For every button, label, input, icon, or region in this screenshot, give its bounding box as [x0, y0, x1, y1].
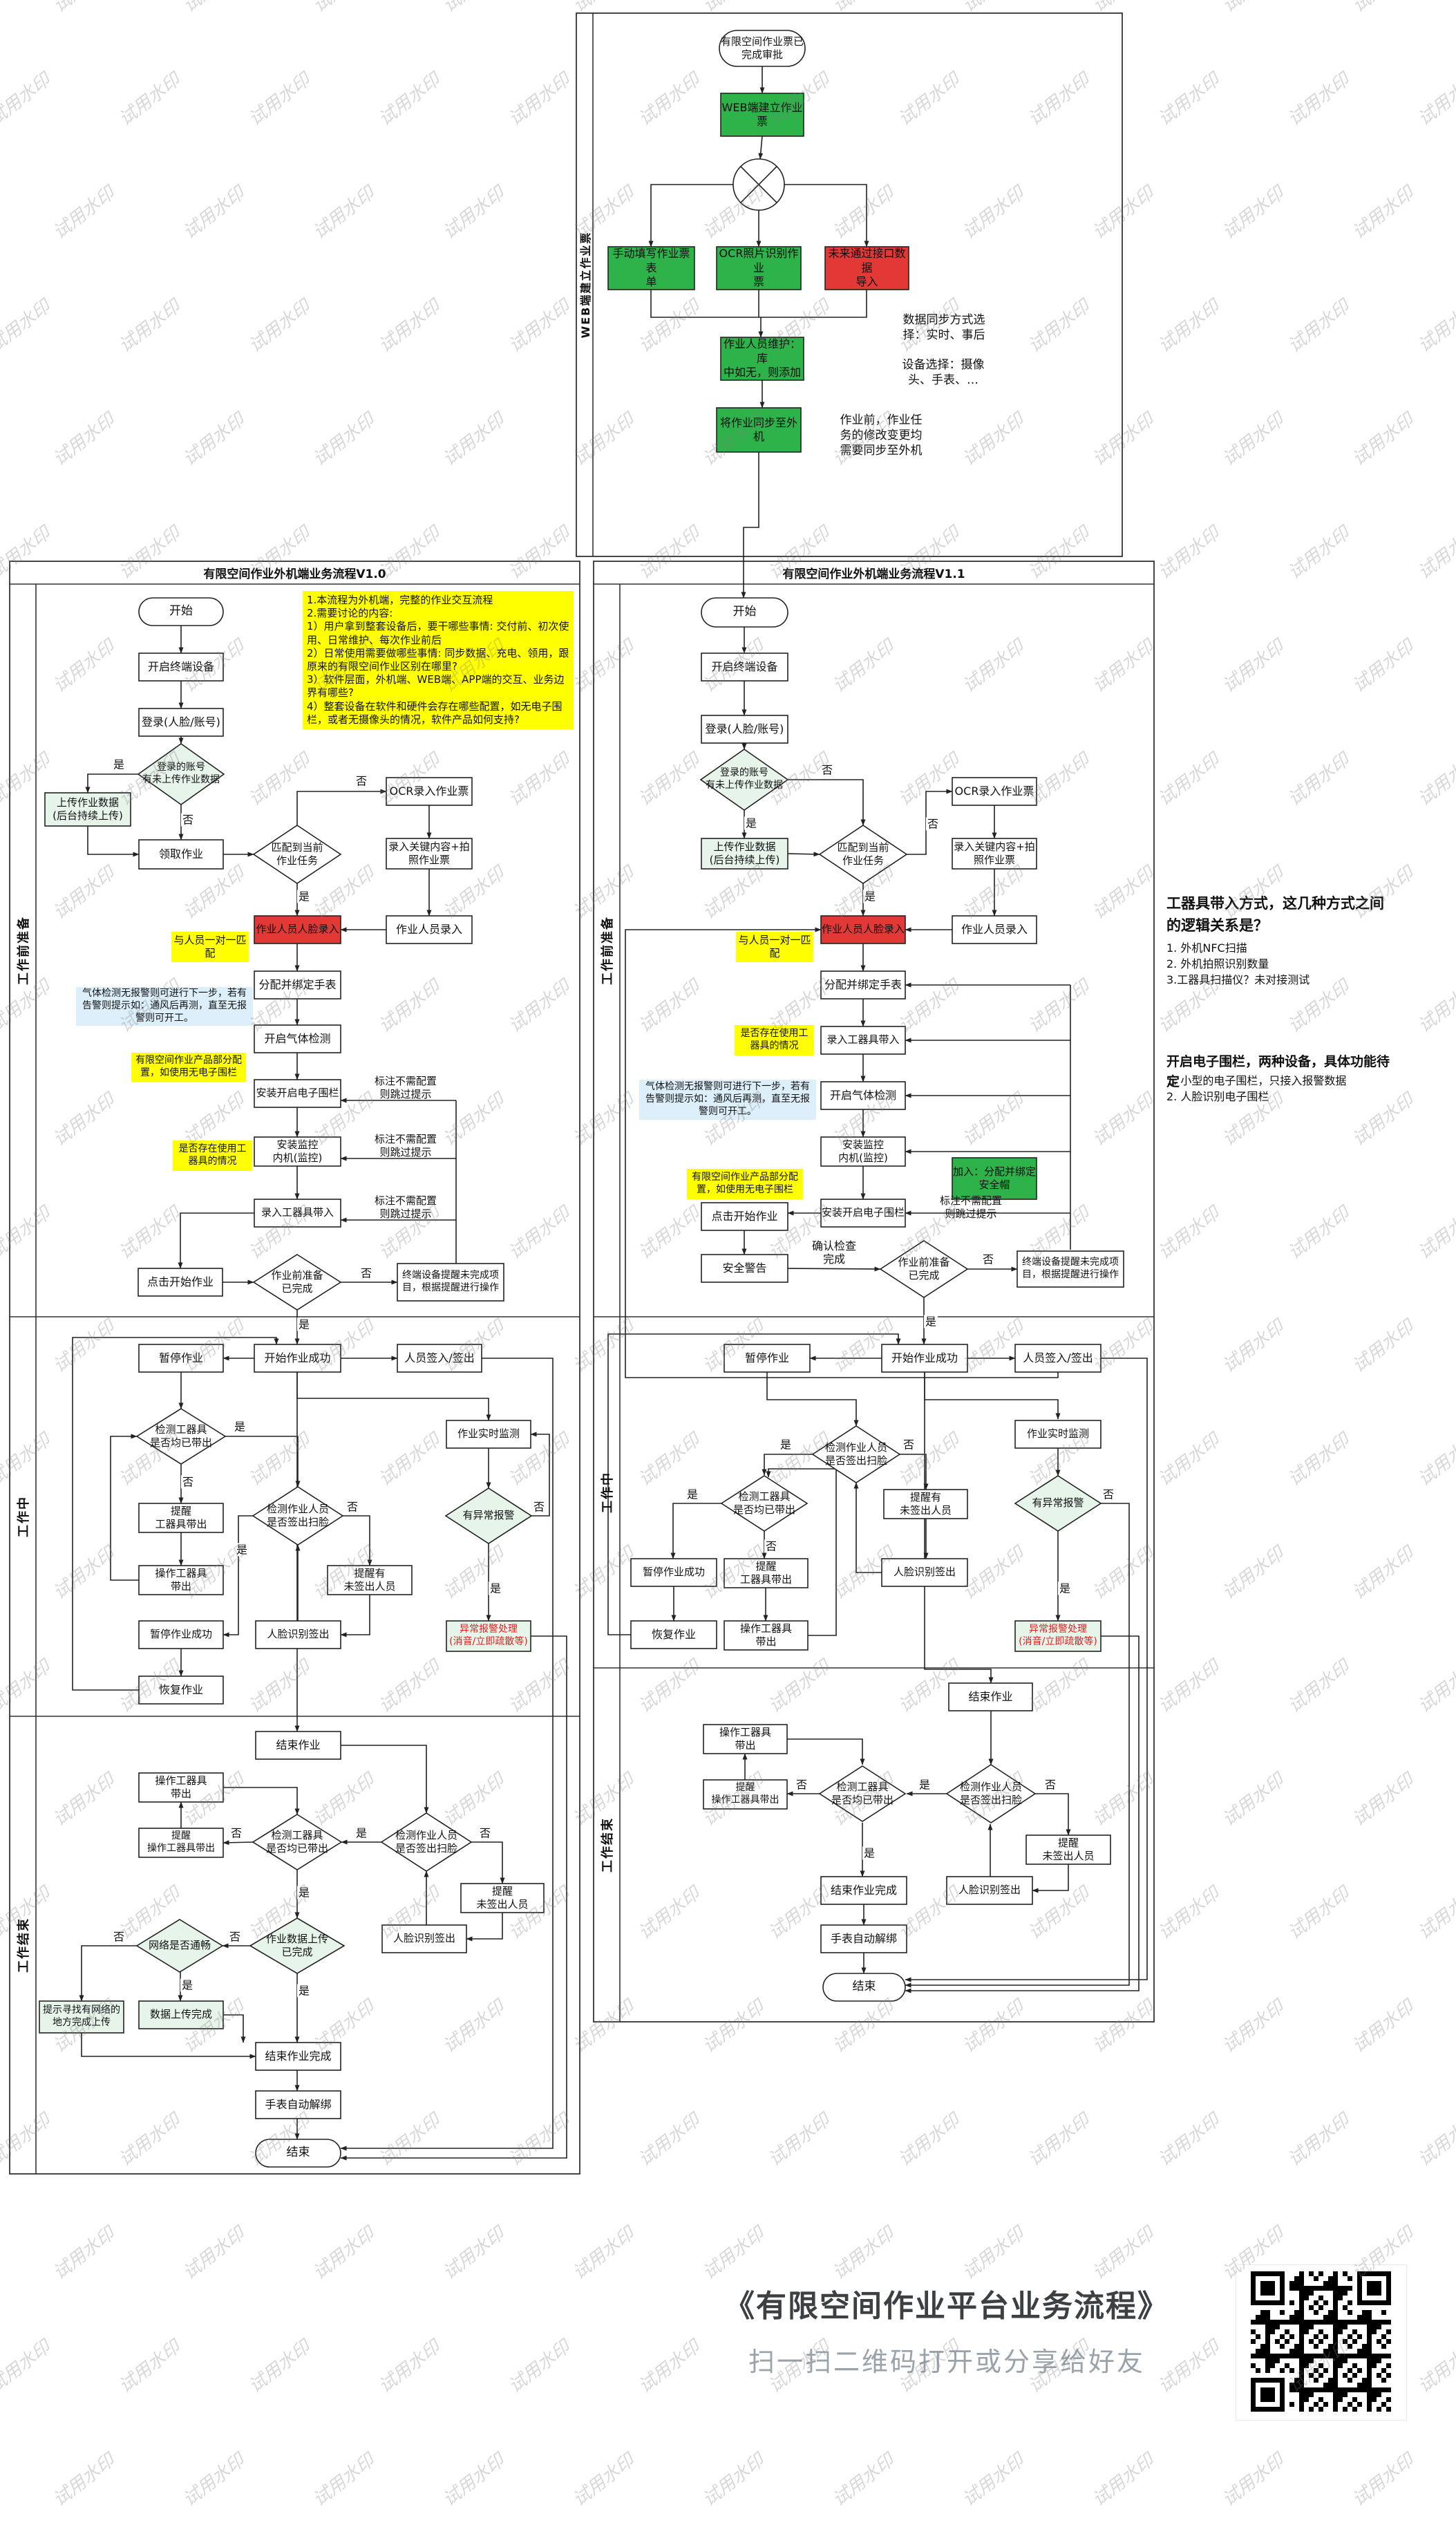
row-label-v10-0: 工作前准备: [14, 916, 32, 985]
edge-label-81: 是: [863, 890, 877, 903]
edge-label-108: 是: [686, 1487, 699, 1501]
flow-edge-41: [225, 1436, 298, 1487]
flow-edge-1: [760, 136, 762, 159]
node-b-n-tool: 是否存在使用工 器具的情况: [735, 1025, 814, 1055]
edge-label-64: 否: [228, 1930, 242, 1943]
node-a-key: 录入关键内容+拍 照作业票: [386, 838, 472, 869]
node-a-d-net: 网络是否通畅: [137, 1920, 223, 1972]
banner-subtitle: 扫一扫二维码打开或分享给好友: [677, 2340, 1216, 2378]
node-a-hint: 提示寻找有网络的 地方完成上传: [39, 2001, 124, 2033]
side-note-sn2: 1. 外机NFC扫描 2. 外机拍照识别数量 3.工器具扫描仪？未对接测试: [1166, 940, 1374, 988]
edge-label-121: 是: [918, 1778, 932, 1791]
node-b-n-cfg: 有限空间作业产品部分配 置，如使用无电子围栏: [687, 1169, 803, 1199]
node-w-note3: 作业前，作业任 务的修改变更均 需要同步至外机: [833, 409, 929, 463]
node-a-facesign: 人脸识别签出: [256, 1621, 341, 1649]
edge-label-76: 是: [744, 816, 758, 829]
row-label-v11-0: 工作前准备: [598, 916, 616, 985]
flow-edge-27: [180, 1213, 254, 1268]
node-b-d-ready: 作业前准备 已完成: [880, 1241, 967, 1297]
node-b-safety: 安全警告: [701, 1255, 788, 1282]
node-a-pauseok: 暂停作业成功: [139, 1621, 223, 1649]
node-a-endok: 结束作业完成: [256, 2043, 341, 2070]
section-v11-title: 有限空间作业外机端业务流程V1.1: [594, 561, 1154, 584]
flow-edge-42: [343, 1516, 370, 1566]
node-b-rtmon: 作业实时监测: [1015, 1420, 1101, 1448]
node-a-n-gas: 气体检测无报警则可进行下一步，若有 告警则提示如：通风后再测，直至无报 警则可开…: [76, 987, 253, 1026]
flow-edge-40: [111, 1436, 139, 1580]
edge-label-57: 否: [478, 1826, 492, 1839]
edge-label-125: 否: [795, 1778, 809, 1791]
node-a-d-tools2: 检测工器具 是否均已带出: [253, 1814, 341, 1870]
node-b-pauseok: 暂停作业成功: [631, 1559, 717, 1586]
flow-edge-43: [341, 1595, 370, 1635]
node-a-remind: 终端设备提醒未完成项 目，根据提醒进行操作: [397, 1264, 504, 1301]
node-w-create: WEB端建立作业票: [721, 93, 804, 136]
flow-edge-108: [673, 1503, 721, 1559]
node-b-remsign: 提醒有 未签出人员: [884, 1490, 967, 1519]
flow-edge-127: [787, 1739, 862, 1765]
row-label-v11-2: 工作结束: [598, 1817, 616, 1873]
edge-label-66: 是: [180, 1978, 194, 1991]
side-note-sn1: 工器具带入方式，这几种方式之间 的逻辑关系是？: [1166, 893, 1394, 937]
flow-edge-53: [341, 1358, 553, 2148]
lane-label-web: WEB端建立作业票: [576, 232, 593, 339]
flow-edge-75: [788, 780, 863, 825]
node-b-ocr: OCR录入作业票: [952, 778, 1037, 805]
node-b-open: 开启终端设备: [701, 653, 788, 681]
node-a-remop: 提醒 操作工器具带出: [139, 1828, 223, 1857]
row-label-v10-1: 工作中: [14, 1496, 32, 1537]
node-b-remtools: 提醒 工器具带出: [724, 1559, 808, 1588]
node-b-helmet: 加入：分配并绑定 安全帽: [952, 1158, 1037, 1199]
node-b-optools2: 操作工器具 带出: [703, 1725, 787, 1754]
node-w-api: 未来通过接口数据 导入: [825, 247, 909, 290]
node-b-startok: 开始作业成功: [882, 1344, 967, 1372]
node-b-watch: 分配并绑定手表: [821, 971, 905, 999]
node-b-d-person: 检测作业人员 是否签出扫脸: [813, 1426, 900, 1483]
side-note-sn4: 1. 小型的电子围栏，只接入报警数据 2. 人脸识别电子围栏: [1166, 1073, 1381, 1105]
flow-edge-57: [471, 1842, 502, 1884]
node-a-upload: 上传作业数据 (后台持续上传): [45, 793, 131, 826]
flow-edge-119: [925, 1372, 991, 1683]
node-a-tools: 录入工器具带入: [254, 1199, 341, 1227]
node-a-d-match: 匹配到当前 作业任务: [254, 825, 341, 883]
node-b-n-gas: 气体检测无报警则可进行下一步，若有 告警则提示如：通风后再测，直至无报 警则可开…: [639, 1080, 816, 1120]
banner-title: 《有限空间作业平台业务流程》: [677, 2281, 1216, 2325]
node-b-tools: 录入工器具带入: [821, 1026, 905, 1054]
node-a-startok: 开始作业成功: [254, 1344, 341, 1372]
node-w-maintain: 作业人员维护：库 中如无，则添加: [721, 337, 804, 380]
node-b-person: 作业人员录入: [952, 916, 1037, 944]
node-b-d-match: 匹配到当前 作业任务: [820, 825, 907, 883]
flow-edge-90: [788, 1268, 880, 1269]
flow-edge-55: [341, 1745, 426, 1813]
node-w-sync: 将作业同步至外机: [717, 408, 801, 452]
node-a-updone: 数据上传完成: [139, 2001, 223, 2029]
node-b-end: 结束: [823, 1973, 905, 2001]
node-a-resume: 恢复作业: [139, 1676, 223, 1704]
node-b-monitor: 安装监控 内机(监控): [821, 1137, 905, 1166]
node-a-ocr: OCR录入作业票: [386, 778, 472, 805]
edge-label-41: 是: [233, 1420, 247, 1433]
flow-edge-60: [223, 1842, 253, 1843]
node-a-skip1: 标注不需配置 则跳过提示: [361, 1074, 451, 1102]
flow-edge-102: [764, 1454, 813, 1475]
node-a-n-match: 与人员一对一匹 配: [171, 932, 249, 962]
edge-label-115: 是: [1058, 1582, 1072, 1595]
flow-edge-103: [900, 1454, 926, 1490]
flow-edge-17: [297, 791, 386, 825]
node-b-start: 开始: [701, 598, 788, 627]
edge-label-14: 否: [181, 813, 195, 826]
node-a-fence: 安装开启电子围栏: [254, 1080, 341, 1107]
section-v10-title: 有限空间作业外机端业务流程V1.0: [10, 561, 580, 584]
edge-label-63: 是: [297, 1886, 311, 1899]
node-a-n-tool: 是否存在使用工 器具的情况: [173, 1141, 252, 1171]
node-b-face: 作业人员人脸录入: [821, 916, 905, 944]
node-a-d-unup: 登录的账号 有未上传作业数据: [138, 744, 224, 805]
qr-code: [1236, 2264, 1407, 2421]
flow-edge-62: [223, 1787, 297, 1814]
edge-label-38: 否: [181, 1475, 195, 1488]
node-a-facesign2: 人脸识别签出: [382, 1925, 466, 1953]
edge-label-52: 否: [532, 1500, 546, 1513]
node-a-pause: 暂停作业: [139, 1344, 223, 1372]
node-a-remsign2: 提醒 未签出人员: [461, 1884, 544, 1913]
node-a-watch: 分配并绑定手表: [254, 971, 341, 999]
edge-label-122: 否: [1043, 1778, 1057, 1791]
edge-label-67: 是: [297, 1984, 311, 1997]
edge-label-128: 是: [862, 1846, 876, 1859]
edge-label-20: 是: [297, 890, 311, 903]
flow-edge-69: [223, 2015, 243, 2043]
node-a-end: 结束: [256, 2139, 341, 2167]
edge-label-51: 是: [489, 1582, 502, 1595]
node-b-key: 录入关键内容+拍 照作业票: [952, 838, 1037, 869]
row-label-v10-2: 工作结束: [14, 1917, 32, 1973]
node-a-alarm: 异常报警处理 (消音/立即疏散等): [446, 1621, 531, 1651]
node-b-n-match: 与人员一对一匹 配: [736, 932, 813, 962]
node-b-facesign: 人脸识别签出: [882, 1559, 967, 1586]
node-w-note1: 数据同步方式选 择：实时、事后: [889, 310, 999, 347]
node-w-start: 有限空间作业票已 完成审批: [719, 30, 805, 66]
flow-edge-105: [856, 1483, 882, 1573]
page: { "watermark": {"text": "试用水印"}, "banner…: [0, 0, 1456, 2534]
node-b-skip1: 标注不需配置 则跳过提示: [926, 1194, 1016, 1221]
node-a-d-person: 检测作业人员 是否签出扫脸: [253, 1487, 343, 1545]
flow-edge-2: [651, 185, 734, 247]
node-a-sign: 人员签入/签出: [397, 1344, 482, 1372]
edge-label-92: 是: [924, 1315, 938, 1328]
node-b-d-alarm: 有异常报警: [1015, 1476, 1101, 1531]
edge-label-30: 是: [297, 1317, 311, 1331]
node-b-d-unup: 登录的账号 有未上传作业数据: [701, 749, 788, 810]
flow-edge-77: [788, 854, 820, 854]
node-b-remsign2: 提醒 未签出人员: [1026, 1835, 1110, 1864]
node-b-sign: 人员签入/签出: [1015, 1344, 1101, 1372]
flow-edge-68: [82, 2033, 256, 2056]
edge-label-29: 否: [359, 1266, 373, 1279]
node-w-manual: 手动填写作业票表 单: [608, 247, 694, 290]
flow-edge-45: [223, 1516, 253, 1635]
edge-label-91: 否: [981, 1252, 995, 1266]
node-a-optools2: 操作工器具 带出: [139, 1773, 223, 1802]
node-b-gas: 开启气体检测: [821, 1082, 905, 1109]
node-a-remsign: 提醒有 未签出人员: [328, 1566, 412, 1595]
edge-label-90: 确认检查 完成: [811, 1239, 858, 1266]
flow-edge-113: [925, 1372, 1058, 1419]
node-b-pause: 暂停作业: [724, 1344, 810, 1372]
edge-label-56: 是: [354, 1826, 368, 1839]
node-b-remop: 提醒 操作工器具带出: [703, 1780, 787, 1809]
node-a-d-person2: 检测作业人员 是否签出扫脸: [381, 1813, 471, 1871]
flow-edge-13: [88, 774, 138, 793]
edge-label-106: 否: [764, 1539, 778, 1552]
edge-label-75: 否: [820, 763, 834, 776]
node-a-bignote: 1.本流程为外机端，完整的作业交互流程 2.需要讨论的内容: 1）用户拿到整套设…: [303, 591, 574, 729]
node-w-ocr: OCR照片识别作业 票: [717, 247, 801, 290]
node-a-person: 作业人员录入: [386, 916, 472, 944]
node-b-click: 点击开始作业: [701, 1203, 788, 1230]
node-b-remind: 终端设备提醒未完成项 目，根据提醒进行操作: [1017, 1251, 1124, 1287]
flow-edge-58: [466, 1913, 502, 1939]
node-a-d-tools: 检测工器具 是否均已带出: [137, 1409, 225, 1464]
edge-label-65: 否: [112, 1930, 126, 1943]
flow-edge-65: [82, 1946, 137, 2001]
node-b-upload: 上传作业数据 (后台持续上传): [701, 838, 788, 869]
flow-edge-101: [767, 1372, 856, 1426]
flow-edge-122: [1035, 1794, 1068, 1835]
flow-edge-15: [88, 826, 139, 854]
node-b-alarm: 异常报警处理 (消音/立即疏散等): [1015, 1621, 1101, 1651]
node-a-remtools: 提醒 工器具带出: [139, 1503, 223, 1532]
edge-label-102: 是: [779, 1438, 793, 1451]
node-a-d-upload: 作业数据上传 已完成: [250, 1918, 344, 1973]
edge-label-103: 否: [902, 1438, 916, 1451]
node-a-n-cfg: 有限空间作业产品部分配 置，如使用无电子围栏: [131, 1053, 246, 1082]
flow-edge-49: [297, 1372, 489, 1420]
node-a-d-alarm: 有异常报警: [446, 1488, 531, 1543]
edge-label-116: 否: [1102, 1487, 1115, 1501]
node-b-fence: 安装开启电子围栏: [821, 1199, 905, 1227]
node-b-endok: 结束作业完成: [821, 1877, 907, 1904]
edge-label-42: 否: [346, 1500, 359, 1513]
node-b-resume: 恢复作业: [631, 1621, 717, 1649]
node-b-endjob: 结束作业: [949, 1683, 1032, 1711]
flow-edge-4: [784, 185, 867, 247]
node-a-click: 点击开始作业: [138, 1268, 223, 1296]
node-a-endjob: 结束作业: [256, 1731, 341, 1759]
edge-label-13: 是: [112, 758, 126, 771]
node-a-face: 作业人员人脸录入: [254, 916, 341, 944]
node-w-note2: 设备选择：摄像 头、手表、…: [891, 355, 995, 391]
node-a-start: 开始: [139, 598, 223, 626]
flow-edge-123: [1032, 1864, 1068, 1890]
node-a-skip3: 标注不需配置 则跳过提示: [361, 1194, 451, 1221]
node-a-rtmon: 作业实时监测: [446, 1420, 531, 1448]
node-a-d-ready: 作业前准备 已完成: [254, 1255, 341, 1310]
node-b-d-tools2: 检测工器具 是否均已带出: [820, 1766, 905, 1821]
edge-label-45: 是: [235, 1543, 249, 1556]
node-b-optools: 操作工器具 带出: [724, 1621, 808, 1650]
diagram-stage: WEB端建立作业票有限空间作业外机端业务流程V1.0工作前准备工作中工作结束有限…: [0, 0, 1456, 2534]
edge-label-60: 否: [229, 1826, 243, 1839]
node-b-d-person2: 检测作业人员 是否签出扫脸: [947, 1765, 1035, 1823]
node-a-unbind: 手表自动解绑: [256, 2091, 341, 2119]
node-a-monitor: 安装监控 内机(监控): [254, 1137, 341, 1166]
footer-banner: 《有限空间作业平台业务流程》 扫一扫二维码打开或分享给好友: [677, 2281, 1216, 2378]
node-b-unbind: 手表自动解绑: [821, 1925, 907, 1953]
row-label-v11-1: 工作中: [598, 1472, 616, 1513]
node-a-skip2: 标注不需配置 则跳过提示: [361, 1132, 451, 1160]
node-a-optools: 操作工器具 带出: [139, 1566, 223, 1595]
node-a-login: 登录(人脸/账号): [139, 708, 223, 736]
node-a-receive: 领取作业: [139, 840, 223, 869]
edge-label-78: 否: [926, 817, 940, 830]
node-b-d-tools: 检测工器具 是否均已带出: [721, 1476, 807, 1531]
node-a-gas: 开启气体检测: [254, 1025, 341, 1053]
node-b-login: 登录(人脸/账号): [701, 715, 788, 743]
node-a-open: 开启终端设备: [139, 653, 223, 681]
edge-label-17: 否: [354, 774, 368, 787]
node-b-facesign2: 人脸识别签出: [947, 1877, 1032, 1904]
